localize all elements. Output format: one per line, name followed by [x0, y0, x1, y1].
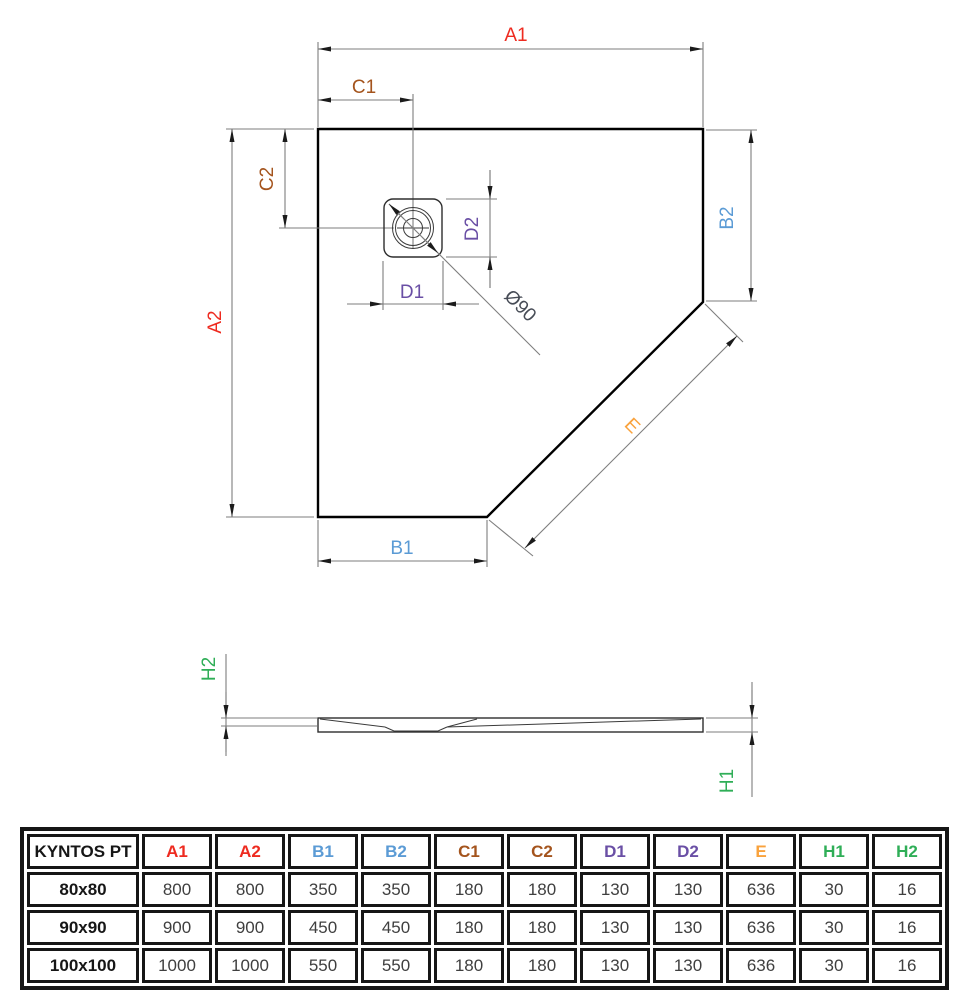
- table-row-100x100: 100x100 1000 1000 550 550 180 180 130 13…: [27, 948, 942, 983]
- dim-label-h2: H2: [199, 657, 220, 681]
- dim-b1: B1: [318, 520, 487, 567]
- cell-value: 636: [726, 948, 796, 983]
- cell-value: 1000: [215, 948, 285, 983]
- dim-label-a1: A1: [504, 25, 527, 46]
- cell-value: 16: [872, 948, 942, 983]
- cell-value: 130: [580, 872, 650, 907]
- side-view: H2 H1: [199, 654, 758, 797]
- cell-model: 100x100: [27, 948, 139, 983]
- header-d2: D2: [653, 834, 723, 869]
- dim-label-d1: D1: [400, 282, 424, 303]
- dim-label-b1: B1: [390, 538, 413, 559]
- tray-outline: [318, 129, 703, 517]
- cell-value: 636: [726, 910, 796, 945]
- profile-floor-slope-right: [447, 719, 701, 727]
- header-c2: C2: [507, 834, 577, 869]
- cell-value: 350: [361, 872, 431, 907]
- spec-table: KYNTOS PT A1 A2 B1 B2 C1 C2 D1 D2 E H1 H…: [20, 827, 949, 990]
- cell-value: 180: [434, 910, 504, 945]
- dim-label-a2: A2: [205, 310, 226, 333]
- header-b2: B2: [361, 834, 431, 869]
- cell-model: 80x80: [27, 872, 139, 907]
- cell-value: 180: [507, 872, 577, 907]
- dim-b2: B2: [706, 130, 757, 301]
- dim-label-d2: D2: [462, 217, 483, 241]
- dim-a1: A1: [318, 25, 703, 127]
- header-a1: A1: [142, 834, 212, 869]
- header-a2: A2: [215, 834, 285, 869]
- cell-value: 800: [215, 872, 285, 907]
- cell-value: 450: [288, 910, 358, 945]
- cell-value: 900: [142, 910, 212, 945]
- cell-value: 180: [434, 872, 504, 907]
- profile-drain-dip: [385, 727, 447, 731]
- cell-value: 550: [288, 948, 358, 983]
- cell-value: 130: [653, 872, 723, 907]
- header-e: E: [726, 834, 796, 869]
- profile-floor-slope-left: [320, 719, 385, 727]
- cell-value: 30: [799, 872, 869, 907]
- top-view: A1 C1 C2 A2 B1: [205, 25, 757, 567]
- cell-value: 900: [215, 910, 285, 945]
- cell-value: 350: [288, 872, 358, 907]
- cell-value: 450: [361, 910, 431, 945]
- dim-label-b2: B2: [717, 206, 738, 229]
- table-row-90x90: 90x90 900 900 450 450 180 180 130 130 63…: [27, 910, 942, 945]
- header-d1: D1: [580, 834, 650, 869]
- cell-value: 30: [799, 910, 869, 945]
- cell-value: 16: [872, 872, 942, 907]
- cell-value: 16: [872, 910, 942, 945]
- cell-value: 800: [142, 872, 212, 907]
- dim-label-c2: C2: [257, 167, 278, 191]
- header-h2: H2: [872, 834, 942, 869]
- cell-value: 550: [361, 948, 431, 983]
- header-model: KYNTOS PT: [27, 834, 139, 869]
- drawing-canvas: A1 C1 C2 A2 B1: [0, 0, 970, 822]
- cell-value: 130: [653, 948, 723, 983]
- table-row-80x80: 80x80 800 800 350 350 180 180 130 130 63…: [27, 872, 942, 907]
- cell-value: 30: [799, 948, 869, 983]
- dim-label-h1: H1: [717, 769, 738, 793]
- header-h1: H1: [799, 834, 869, 869]
- cell-model: 90x90: [27, 910, 139, 945]
- cell-value: 130: [580, 948, 650, 983]
- dim-label-c1: C1: [352, 77, 376, 98]
- cell-value: 1000: [142, 948, 212, 983]
- cell-value: 130: [580, 910, 650, 945]
- dim-h2: H2: [199, 654, 317, 756]
- cell-value: 180: [507, 948, 577, 983]
- dim-label-e: E: [620, 414, 644, 438]
- header-b1: B1: [288, 834, 358, 869]
- cell-value: 180: [434, 948, 504, 983]
- cell-value: 636: [726, 872, 796, 907]
- cell-value: 180: [507, 910, 577, 945]
- header-c1: C1: [434, 834, 504, 869]
- technical-drawing-page: A1 C1 C2 A2 B1: [0, 0, 970, 992]
- cell-value: 130: [653, 910, 723, 945]
- spec-table-header-row: KYNTOS PT A1 A2 B1 B2 C1 C2 D1 D2 E H1 H…: [27, 834, 942, 869]
- dim-h1: H1: [706, 682, 758, 797]
